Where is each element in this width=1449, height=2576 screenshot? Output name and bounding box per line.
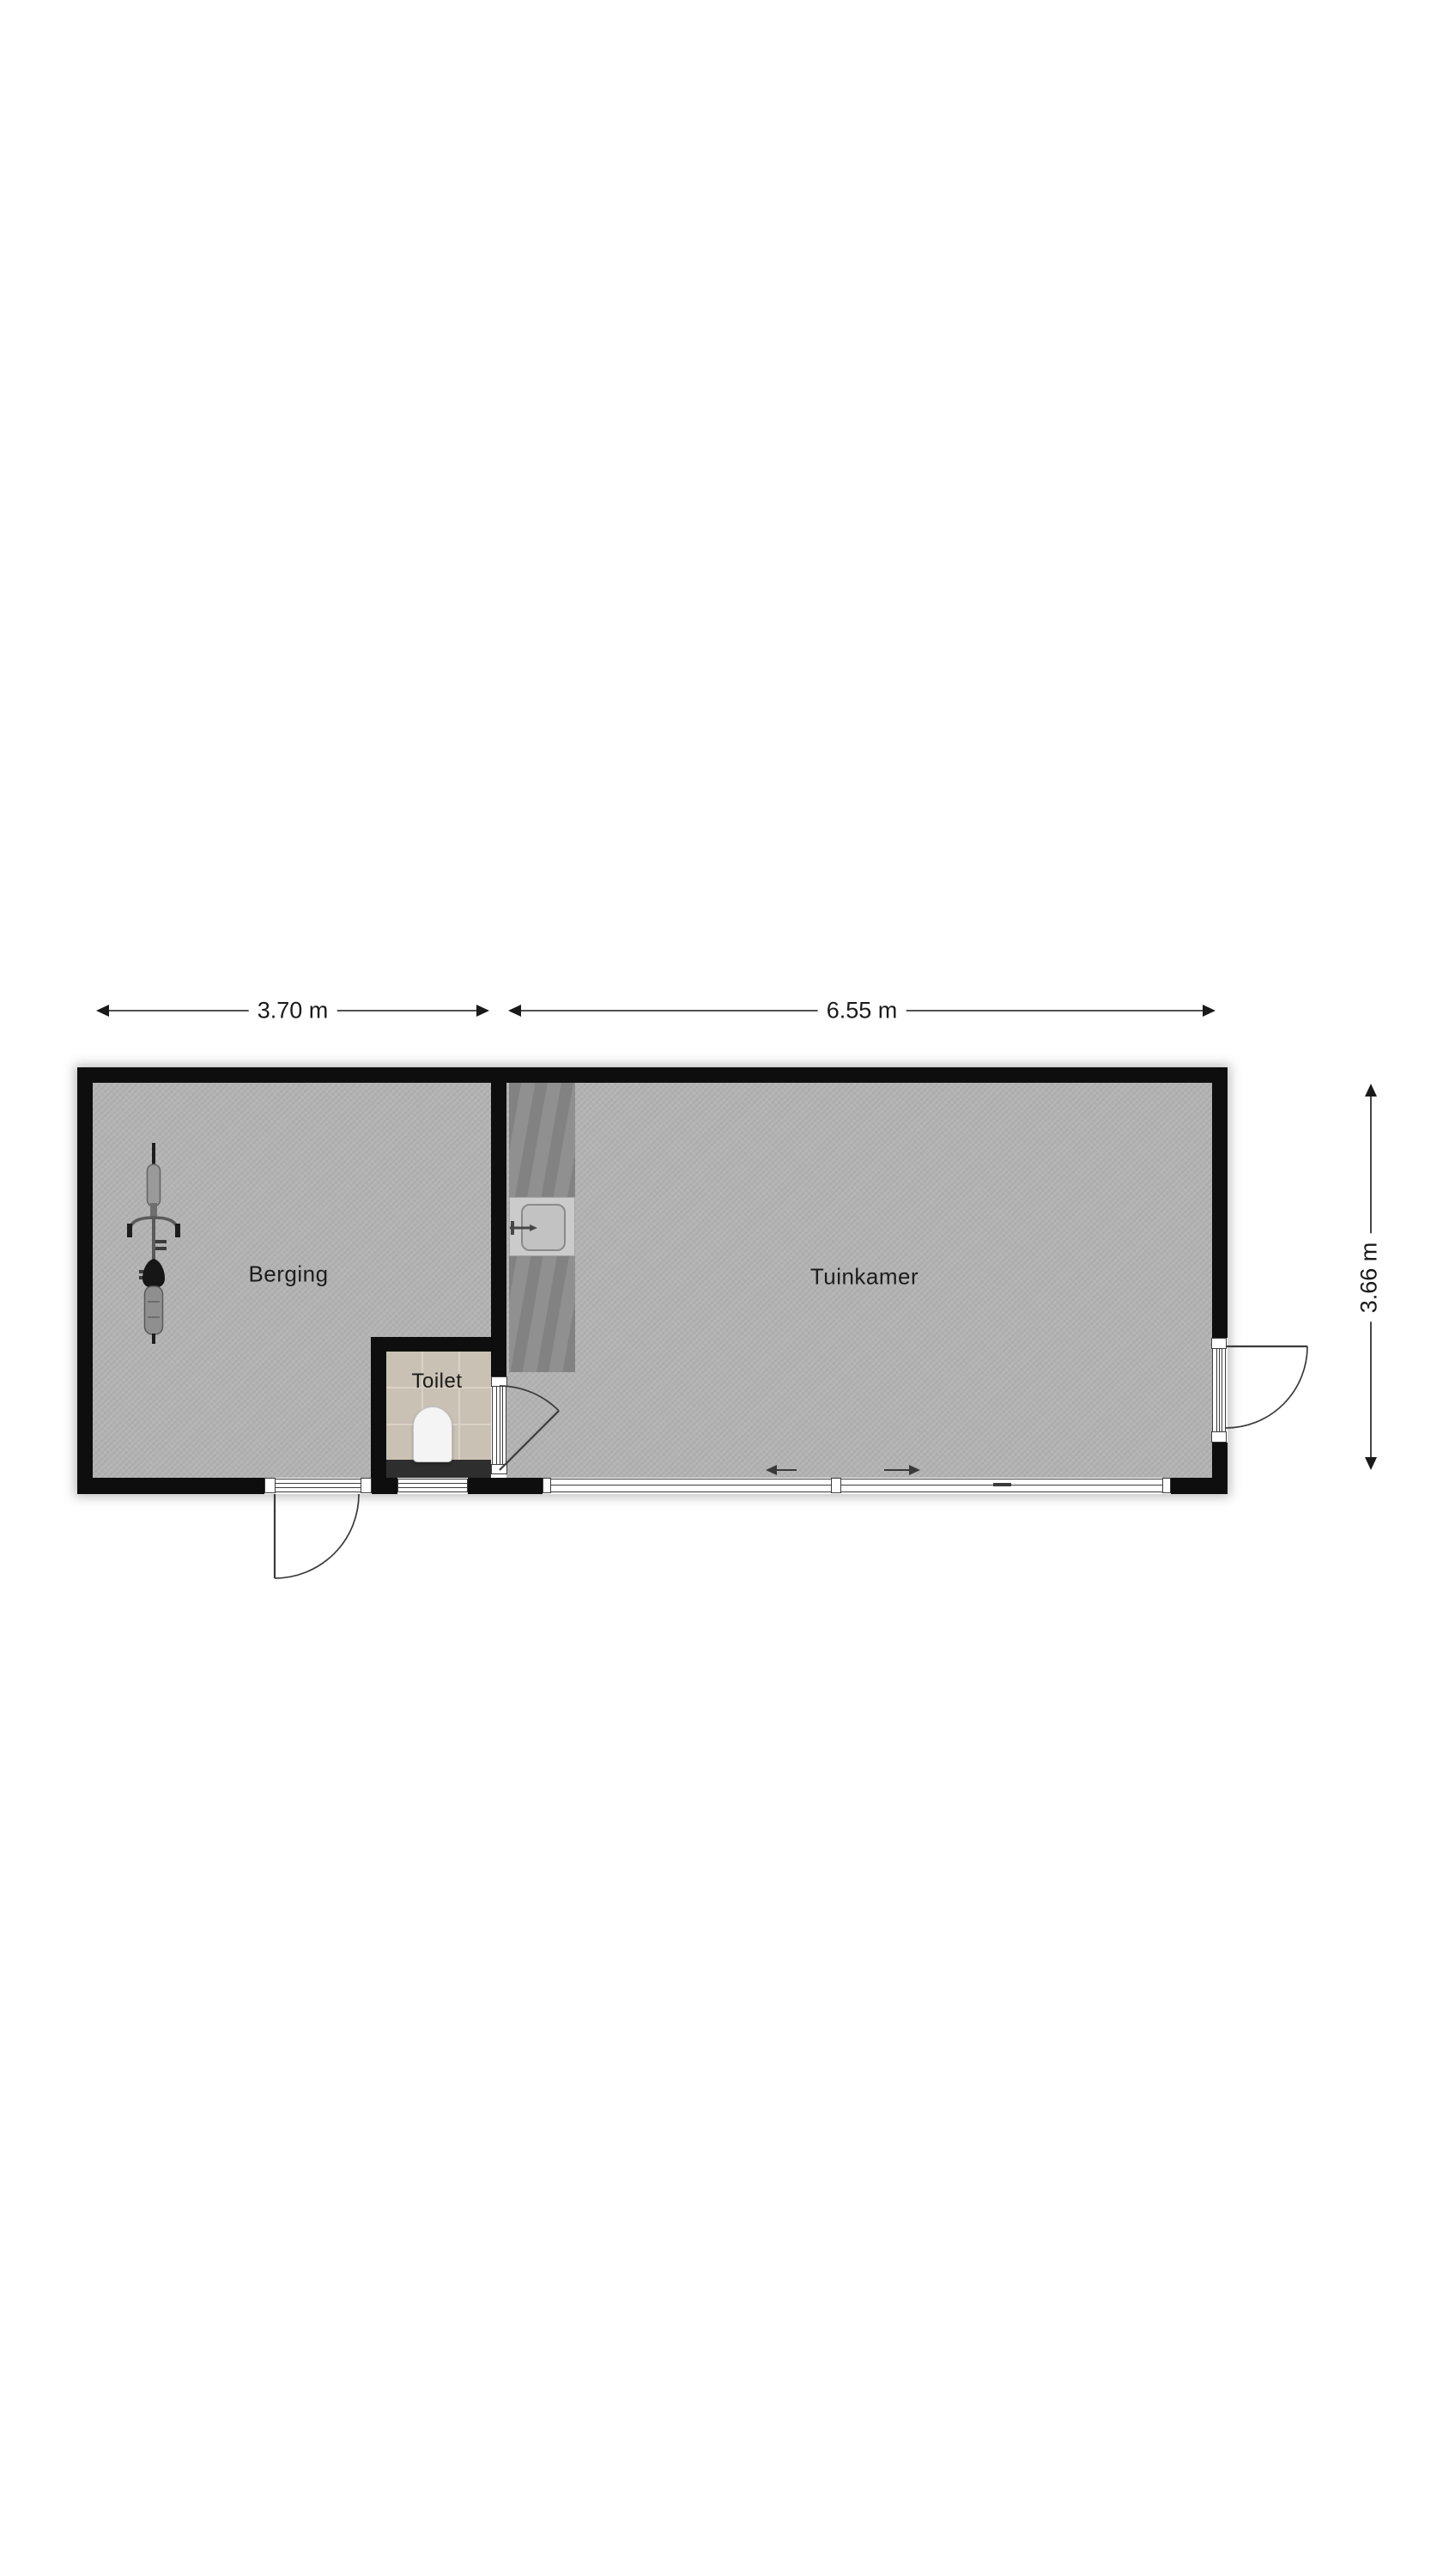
toilet-cistern [385,1460,491,1478]
toilet-doorway-cap-bottom [491,1464,507,1474]
dimension-label-depth: 3.66 m [1356,1234,1383,1322]
sliding-window-junction [831,1478,841,1493]
wall-left [77,1067,93,1494]
wall-bottom-a [77,1478,264,1494]
dimension-label-berging-width: 3.70 m [249,998,337,1024]
kitchen-sink [509,1197,575,1256]
tuinkamer-sliding-window [543,1479,1171,1492]
room-label-toilet: Toilet [411,1370,462,1394]
wall-bottom-b [372,1478,397,1494]
wall-bottom-d [1171,1478,1228,1494]
wall-toilet-left [371,1352,386,1478]
right-door-swing-icon [1226,1346,1307,1428]
floor-plan-canvas: Berging Tuinkamer Toilet 3.70 m 6.55 m 3… [0,0,1449,2576]
toilet-doorway-jamb [492,1376,506,1474]
wall-bottom-c [468,1478,543,1494]
berging-doorway-threshold [264,1479,372,1492]
berging-doorway-cap-left [264,1478,276,1493]
wall-divider [491,1083,506,1376]
wall-top [77,1067,1228,1083]
right-doorway-jamb [1212,1338,1226,1443]
toilet-window [397,1479,468,1492]
right-doorway-cap-bottom [1211,1431,1227,1443]
sink-basin [521,1204,566,1251]
wall-right-upper [1212,1067,1228,1338]
wall-toilet-top [371,1337,506,1352]
toilet-fixture-icon [413,1406,452,1462]
berging-doorway-cap-right [361,1478,372,1493]
sliding-window-cap-left [543,1478,551,1493]
room-label-tuinkamer: Tuinkamer [810,1264,919,1291]
toilet-doorway-cap-top [491,1376,507,1387]
right-doorway-cap-top [1211,1338,1227,1349]
berging-door-swing-icon [275,1494,359,1578]
room-label-berging: Berging [248,1261,328,1288]
dimension-label-tuinkamer-width: 6.55 m [818,998,906,1024]
sliding-window-cap-right [1162,1478,1171,1493]
